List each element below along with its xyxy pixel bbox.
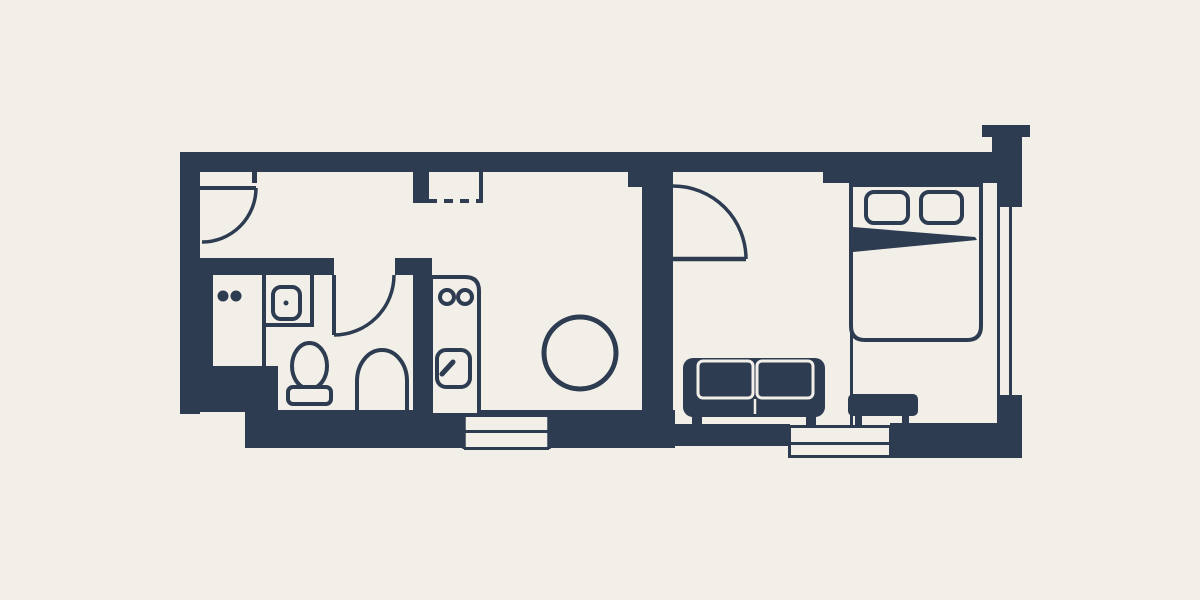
floor-plan-canvas (0, 0, 1200, 600)
bed-pillow-2 (921, 192, 962, 223)
closet-side-wall (413, 171, 429, 203)
toilet-bowl (292, 343, 327, 389)
ottoman-leg-1 (855, 416, 862, 428)
bed-pillow-1 (866, 192, 908, 223)
bottom-wall-left (245, 410, 675, 448)
living-door-arc (673, 186, 746, 259)
ottoman-body (848, 394, 918, 416)
counter-burner-dot-1 (218, 291, 229, 302)
bathroom-sink-drain (284, 301, 289, 306)
chimney-stub (992, 137, 1022, 153)
sofa-foot-2 (806, 417, 816, 428)
bedroom-top-wall (823, 152, 1022, 183)
bathroom-door-arc (334, 275, 394, 335)
entry-door-arc (202, 188, 256, 242)
ottoman-leg-2 (902, 416, 909, 428)
kitchen-sink-square (437, 350, 470, 387)
chimney-cap (982, 125, 1030, 137)
living-divider-wall (642, 171, 673, 427)
bathroom-corner-block (198, 366, 278, 412)
living-window-glass (789, 427, 891, 456)
dining-table (544, 317, 616, 389)
counter-burner-dot-2 (231, 291, 242, 302)
shower-arch (357, 350, 407, 411)
floor-plan (0, 0, 1200, 600)
bottom-wall-living (660, 424, 790, 446)
entry-door-jamb (252, 171, 257, 183)
toilet-tank (288, 387, 331, 404)
left-wall (180, 152, 200, 414)
bathroom-left-strip (198, 275, 213, 370)
sofa-foot-1 (692, 417, 702, 428)
